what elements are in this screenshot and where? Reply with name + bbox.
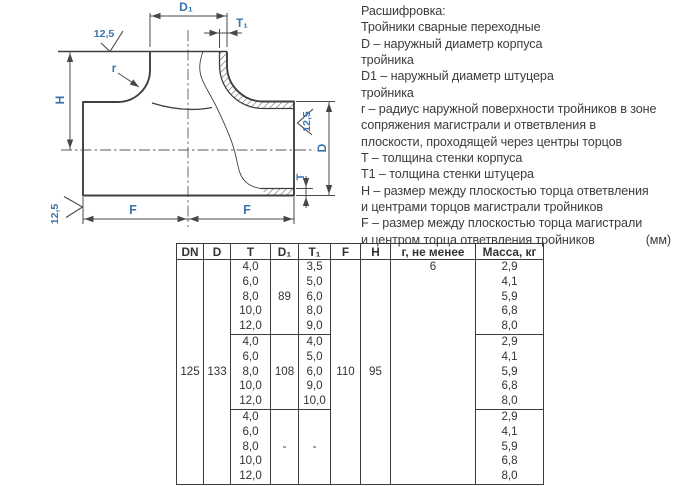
col-header-t1: T₁ [299,244,331,260]
spec-table: DN D T D₁ T₁ F H г, не менее Масса, кг 1… [176,243,544,485]
section-hatch [220,52,295,196]
weld-intersection-line [152,103,212,109]
dim-label-f-right: F [243,203,251,217]
col-header-d: D [204,244,231,260]
legend-units: (мм) [646,232,671,248]
centerlines [61,30,315,227]
legend: Расшифровка: Тройники сварные переходные… [361,3,683,248]
legend-line: сопряжения магистрали и ответвления в [361,117,683,133]
roughness-mark-bottom-left [64,197,83,218]
cell-d1-block3: - [271,409,299,484]
col-header-r-min: г, не менее [391,244,476,260]
dim-label-f-left: F [129,203,137,217]
cell-mass-block1: 2,9 4,1 5,9 6,8 8,0 [476,260,544,335]
cell-t1-block1: 3,5 5,0 6,0 8,0 9,0 [299,260,331,335]
roughness-label-top: 12,5 [94,28,115,40]
cell-d: 133 [204,260,231,485]
col-header-t: T [231,244,271,260]
tee-drawing: D₁ T₁ 12,5 r H 12,5 D T F F 12,5 [0,0,360,243]
legend-line: и центрами торцов магистрали тройников [361,199,683,215]
roughness-label-bottom-left: 12,5 [49,204,61,225]
cell-d1-block1: 89 [271,260,299,335]
legend-line: r – радиус наружной поверхности тройнико… [361,101,683,117]
roughness-label-right: 12,5 [301,111,313,132]
col-header-d1: D₁ [271,244,299,260]
cell-mass-block3: 2,9 4,1 5,9 6,8 8,0 [476,409,544,484]
col-header-h: H [361,244,391,260]
col-header-f: F [331,244,361,260]
legend-line: H – размер между плоскостью торца ответв… [361,183,683,199]
dim-label-h: H [53,96,67,105]
cell-t-block3: 4,0 6,0 8,0 10,0 12,0 [231,409,271,484]
dim-label-r: r [112,63,117,75]
cell-h: 95 [361,260,391,485]
legend-line: D – наружный диаметр корпуса [361,36,683,52]
cell-t1-block2: 4,0 5,0 6,0 9,0 10,0 [299,334,331,409]
dim-label-d1: D₁ [179,0,193,14]
break-line [200,52,261,189]
cell-t1-block3: - [299,409,331,484]
page: D₁ T₁ 12,5 r H 12,5 D T F F 12,5 Расшифр… [0,0,700,486]
legend-line: тройника [361,52,683,68]
legend-line: D1 – наружный диаметр штуцера [361,68,683,84]
dimension-lines [70,13,335,224]
cell-t-block2: 4,0 6,0 8,0 10,0 12,0 [231,334,271,409]
part-outline [58,52,294,196]
legend-line: T1 – толщина стенки штуцера [361,166,683,182]
cell-d1-block2: 108 [271,334,299,409]
legend-line: тройника [361,85,683,101]
table-row: 125 133 4,0 6,0 8,0 10,0 12,0 89 3,5 5,0… [177,260,544,335]
col-header-mass: Масса, кг [476,244,544,260]
legend-line: F – размер между плоскостью торца магист… [361,215,683,231]
table-header-row: DN D T D₁ T₁ F H г, не менее Масса, кг [177,244,544,260]
cell-f: 110 [331,260,361,485]
cell-mass-block2: 2,9 4,1 5,9 6,8 8,0 [476,334,544,409]
dim-label-t1: T₁ [236,18,248,30]
col-header-dn: DN [177,244,204,260]
legend-title: Расшифровка: [361,3,683,19]
legend-line: Тройники сварные переходные [361,19,683,35]
legend-line: T – толщина стенки корпуса [361,150,683,166]
legend-line: плоскости, проходящей через центры торцо… [361,134,683,150]
dim-label-d: D [315,143,329,152]
cell-r-min: 6 [391,260,476,485]
dim-label-t: T [295,173,307,180]
cell-dn: 125 [177,260,204,485]
cell-t-block1: 4,0 6,0 8,0 10,0 12,0 [231,260,271,335]
